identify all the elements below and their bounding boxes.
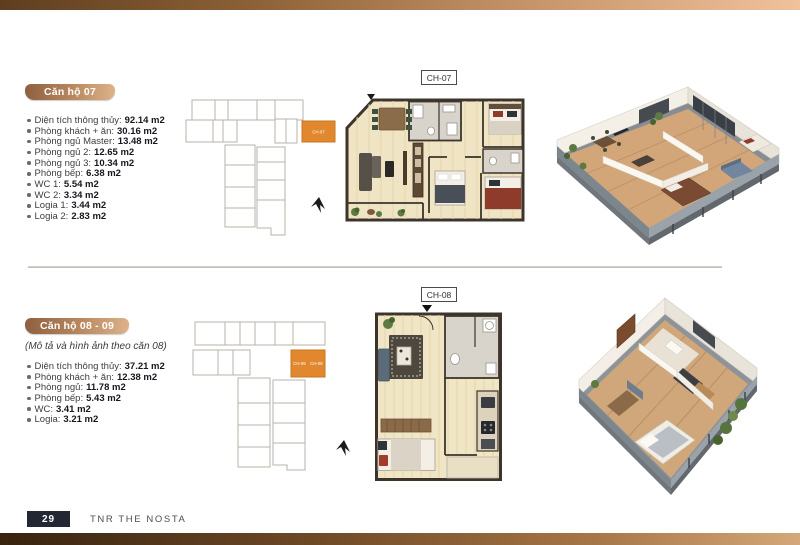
spec-value: 13.48 m2 (118, 136, 158, 147)
spec-row: Phòng ngủ Master:13.48 m2 (27, 136, 165, 147)
page-number-badge: 29 (27, 511, 70, 527)
bench-table (381, 419, 431, 432)
unit-07-spec-list: Diện tích thông thủy:92.14 m2 Phòng khác… (27, 115, 165, 222)
spec-label: Logia: (35, 414, 61, 425)
section-divider (28, 266, 722, 268)
spec-row: Logia 1:3.44 m2 (27, 201, 165, 212)
unit-08-plan-label: CH-08 (421, 287, 457, 302)
bullet-icon (27, 119, 31, 123)
bullet-icon (27, 151, 31, 155)
spec-label: Phòng khách + ăn: (35, 372, 115, 383)
spec-row: Diện tích thông thủy:37.21 m2 (27, 361, 165, 372)
spec-label: WC: (35, 404, 53, 415)
spec-label: Logia 1: (35, 200, 69, 211)
floorplan-ch08 (375, 305, 502, 481)
keyplan-unit-0809: CH-09 CH-08 (192, 318, 362, 478)
unit-07-plan-label: CH-07 (421, 70, 457, 85)
brochure-page: { "page_footer": { "page_number": "29", … (0, 0, 800, 545)
bed (378, 439, 435, 471)
spec-value: 3.41 m2 (56, 404, 91, 415)
master-bed (489, 104, 521, 134)
bullet-icon (27, 172, 31, 176)
spec-row: Phòng bếp:5.43 m2 (27, 393, 165, 404)
spec-row: Phòng ngủ 3:10.34 m2 (27, 158, 165, 169)
spec-value: 37.21 m2 (125, 361, 165, 372)
spec-row: Phòng bếp:6.38 m2 (27, 168, 165, 179)
brand-title: TNR THE NOSTA (90, 514, 186, 525)
unit-0809-spec-list: Diện tích thông thủy:37.21 m2 Phòng khác… (27, 361, 165, 425)
spec-label: Logia 2: (35, 211, 69, 222)
spec-value: 3.34 m2 (64, 190, 99, 201)
spec-value: 3.44 m2 (71, 200, 106, 211)
bottom-accent-bar (0, 533, 800, 545)
plan-north-tick (422, 305, 432, 312)
spec-row: Phòng khách + ăn:12.38 m2 (27, 372, 165, 383)
keyplan-unit-label: CH-08 (310, 361, 323, 366)
unit-07-badge: Căn hộ 07 (25, 84, 115, 100)
spec-label: Phòng ngủ 3: (35, 158, 92, 169)
spec-label: Phòng khách + ăn: (35, 126, 115, 137)
bedroom3-bed (485, 177, 521, 209)
spec-label: Phòng ngủ Master: (35, 136, 115, 147)
keyplan-unit-07: CH-07 (185, 95, 345, 245)
render-3d-ch08 (543, 292, 790, 504)
bullet-icon (27, 215, 31, 219)
spec-row: Logia 2:2.83 m2 (27, 211, 165, 222)
spec-row: Phòng khách + ăn:30.16 m2 (27, 126, 165, 137)
spec-value: 10.34 m2 (94, 158, 134, 169)
spec-label: Phòng ngủ 2: (35, 147, 92, 158)
spec-value: 2.83 m2 (71, 211, 106, 222)
unit-0809-badge: Căn hộ 08 - 09 (25, 318, 129, 334)
spec-value: 5.54 m2 (64, 179, 99, 190)
spec-label: Phòng ngủ: (35, 382, 84, 393)
spec-row: Diện tích thông thủy:92.14 m2 (27, 115, 165, 126)
bullet-icon (27, 418, 31, 422)
bullet-icon (27, 140, 31, 144)
floorplan-ch07 (343, 93, 535, 235)
bullet-icon (27, 397, 31, 401)
keyplan-unit-label: CH-09 (293, 361, 306, 366)
bullet-icon (27, 183, 31, 187)
spec-label: Phòng bếp: (35, 168, 84, 179)
spec-label: Diện tích thông thủy: (35, 115, 122, 126)
dining-set (372, 108, 412, 130)
spec-value: 12.38 m2 (117, 372, 157, 383)
spec-value: 92.14 m2 (125, 115, 165, 126)
render-3d-ch07 (543, 78, 790, 255)
spec-value: 11.78 m2 (86, 382, 126, 393)
bullet-icon (27, 129, 31, 133)
spec-label: Phòng bếp: (35, 393, 84, 404)
kitchen-block (477, 391, 498, 451)
spec-value: 5.43 m2 (86, 393, 121, 404)
spec-row: WC 2:3.34 m2 (27, 190, 165, 201)
bullet-icon (27, 375, 31, 379)
top-accent-bar (0, 0, 800, 10)
north-arrow-icon (336, 440, 350, 456)
spec-label: WC 2: (35, 190, 61, 201)
bullet-icon (27, 386, 31, 390)
spec-label: Diện tích thông thủy: (35, 361, 122, 372)
spec-value: 6.38 m2 (86, 168, 121, 179)
spec-row: WC:3.41 m2 (27, 404, 165, 415)
keyplan-unit-label: CH-07 (312, 130, 325, 135)
spec-row: Phòng ngủ 2:12.65 m2 (27, 147, 165, 158)
north-arrow-icon (311, 197, 325, 213)
bullet-icon (27, 204, 31, 208)
balcony (447, 457, 498, 478)
spec-row: Logia:3.21 m2 (27, 414, 165, 425)
spec-value: 3.21 m2 (63, 414, 98, 425)
spec-label: WC 1: (35, 179, 61, 190)
spec-value: 30.16 m2 (117, 126, 157, 137)
tv-cabinet (403, 151, 407, 185)
spec-value: 12.65 m2 (94, 147, 134, 158)
unit-0809-note: (Mô tả và hình ảnh theo căn 08) (25, 341, 167, 352)
bedroom2-bed (435, 171, 465, 205)
bullet-icon (27, 193, 31, 197)
spec-row: WC 1:5.54 m2 (27, 179, 165, 190)
bullet-icon (27, 161, 31, 165)
bullet-icon (27, 365, 31, 369)
bullet-icon (27, 407, 31, 411)
spec-row: Phòng ngủ:11.78 m2 (27, 382, 165, 393)
